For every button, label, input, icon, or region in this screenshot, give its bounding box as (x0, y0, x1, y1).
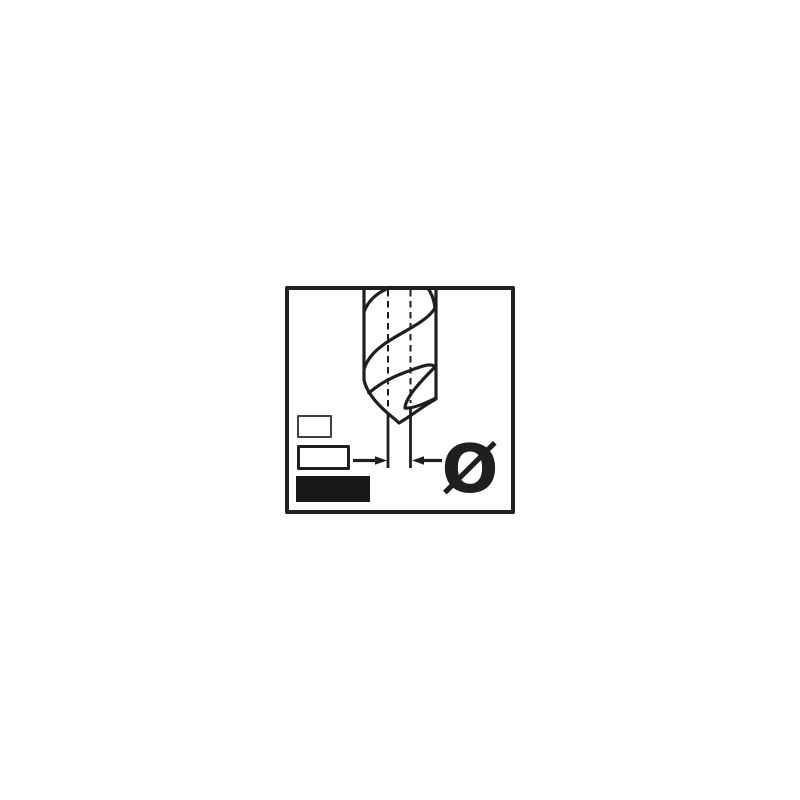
diameter-symbol: Ø (442, 430, 499, 508)
size-box-small (298, 416, 331, 437)
drill-diameter-pictogram: Ø (0, 0, 800, 800)
dimension-arrow-left-head (375, 456, 387, 464)
flute-line-main (364, 308, 435, 369)
size-box-medium (299, 447, 349, 469)
flute-line-top-left (364, 287, 391, 312)
dimension-arrow-right-head (412, 456, 424, 464)
flute-line-top-right-curl (427, 287, 435, 308)
product-image: Ø (0, 0, 800, 800)
size-box-large-filled (296, 476, 370, 502)
